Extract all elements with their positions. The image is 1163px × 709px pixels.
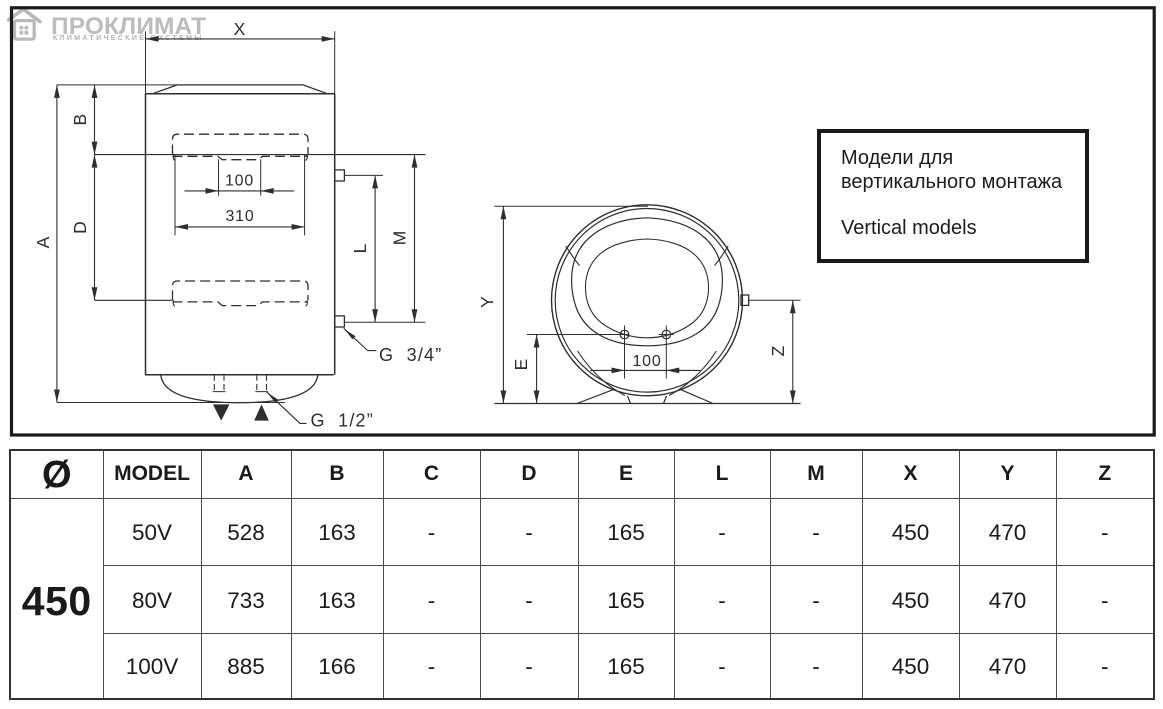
svg-text:G 1/2”: G 1/2” [311, 411, 374, 431]
svg-text:G 3/4”: G 3/4” [379, 345, 442, 365]
svg-text:A: A [33, 236, 53, 248]
svg-text:E: E [511, 359, 531, 371]
svg-text:Z: Z [768, 345, 788, 356]
svg-text:X: X [234, 19, 246, 39]
svg-text:L: L [350, 243, 370, 253]
svg-text:M: M [390, 231, 410, 246]
svg-text:100: 100 [225, 173, 254, 190]
svg-text:310: 310 [225, 208, 254, 225]
svg-text:B: B [70, 114, 90, 126]
svg-text:D: D [70, 221, 90, 234]
svg-text:100: 100 [632, 353, 661, 370]
svg-text:Y: Y [477, 296, 497, 308]
